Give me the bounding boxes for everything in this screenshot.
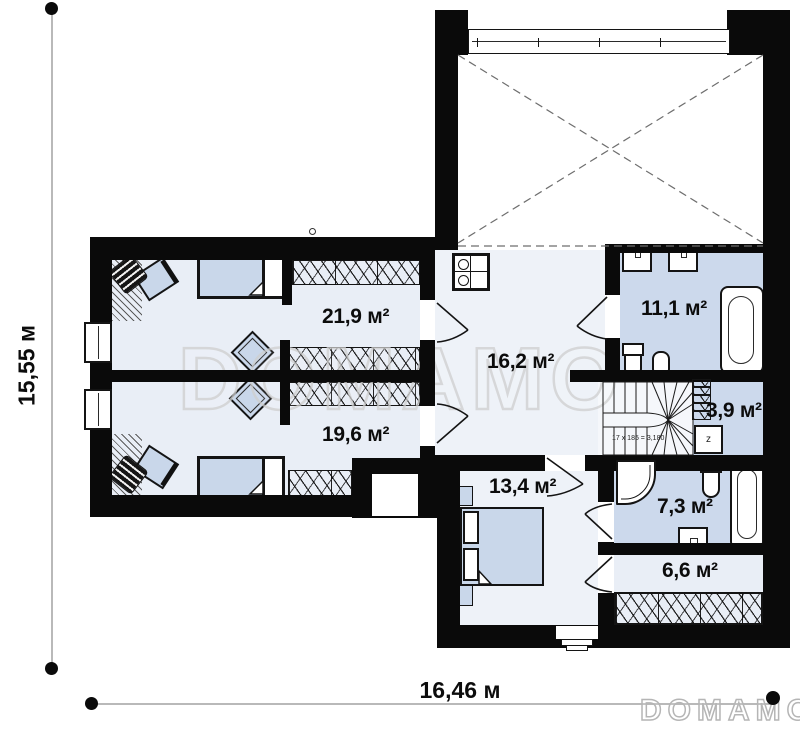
- room-area-label: 3,9 м²: [706, 399, 762, 423]
- door-opening: [605, 295, 620, 338]
- room-area-label: 16,2 м²: [487, 350, 554, 374]
- window-sill: [566, 645, 588, 651]
- door-opening: [420, 406, 435, 446]
- dimension-dot: [85, 697, 98, 710]
- wall: [605, 250, 620, 295]
- bed-pillow: [463, 511, 479, 544]
- window-glass-line: [98, 326, 99, 359]
- wall: [614, 543, 790, 555]
- door-opening: [598, 555, 614, 593]
- wall: [570, 370, 763, 382]
- bed-pillow: [262, 260, 282, 296]
- double-bed: [460, 507, 544, 586]
- window-glass-line: [98, 393, 99, 426]
- wall: [280, 340, 290, 425]
- wall: [605, 244, 763, 253]
- wall: [435, 10, 468, 55]
- window-ticks: [477, 38, 721, 47]
- washer-drum-icon: [458, 275, 469, 286]
- single-bed: [197, 456, 285, 498]
- washer-icon: [454, 255, 471, 272]
- boiler: z: [694, 425, 723, 454]
- bathtub: [720, 286, 764, 374]
- wall: [437, 458, 460, 648]
- room-area-label: 19,6 м²: [322, 423, 389, 447]
- wall: [90, 237, 435, 260]
- sink: [668, 251, 698, 272]
- sink: [622, 251, 652, 272]
- vent-circle: [309, 228, 316, 235]
- door-opening: [420, 300, 435, 340]
- wall: [100, 370, 435, 382]
- door-opening: [598, 502, 614, 542]
- wall: [598, 455, 614, 648]
- washer-drum-icon: [458, 259, 469, 270]
- washer-icon: [454, 271, 471, 289]
- wardrobe-hatch: [292, 260, 420, 285]
- dimension-dot: [45, 2, 58, 15]
- shelf-hatch: [692, 379, 711, 387]
- room-area-label: 7,3 м²: [657, 495, 713, 519]
- window: [84, 389, 112, 430]
- window-large-top: [468, 29, 730, 54]
- toilet-bowl: [702, 471, 720, 498]
- wall: [90, 495, 370, 517]
- wardrobe-hatch: [288, 470, 352, 496]
- shelf-hatch: [470, 271, 488, 289]
- shelf-hatch: [692, 387, 711, 395]
- bathtub-basin: [728, 296, 754, 364]
- shelf-hatch: [470, 255, 488, 272]
- window-opening: [556, 626, 598, 639]
- chimney-shaft: [372, 474, 418, 516]
- washer-dryer-unit: [452, 253, 490, 291]
- dimension-dot: [766, 691, 780, 705]
- wall: [727, 10, 790, 55]
- window: [84, 322, 112, 363]
- bathtub-basin: [737, 469, 757, 539]
- room-area-label: 13,4 м²: [489, 475, 556, 499]
- width-dimension-label: 16,46 м: [400, 677, 520, 704]
- single-bed: [197, 257, 285, 299]
- room-area-label: 6,6 м²: [662, 559, 718, 583]
- dimension-dot: [45, 662, 58, 675]
- bed-pillow: [463, 548, 479, 581]
- room-area-label: 21,9 м²: [322, 305, 389, 329]
- dimension-line-vertical: [51, 8, 53, 668]
- bed-pillow: [262, 459, 282, 495]
- door-opening: [545, 455, 585, 471]
- bathtub: [730, 461, 764, 546]
- floor-void: [458, 53, 763, 246]
- height-dimension-label: 15,55 м: [14, 311, 41, 421]
- boiler-label: z: [706, 434, 711, 445]
- floor-plan: 15,55 м 16,46 м DOMAMO DOMAMO: [0, 0, 800, 730]
- wall: [282, 250, 292, 305]
- room-area-label: 11,1 м²: [641, 297, 707, 321]
- wardrobe-hatch: [614, 592, 763, 625]
